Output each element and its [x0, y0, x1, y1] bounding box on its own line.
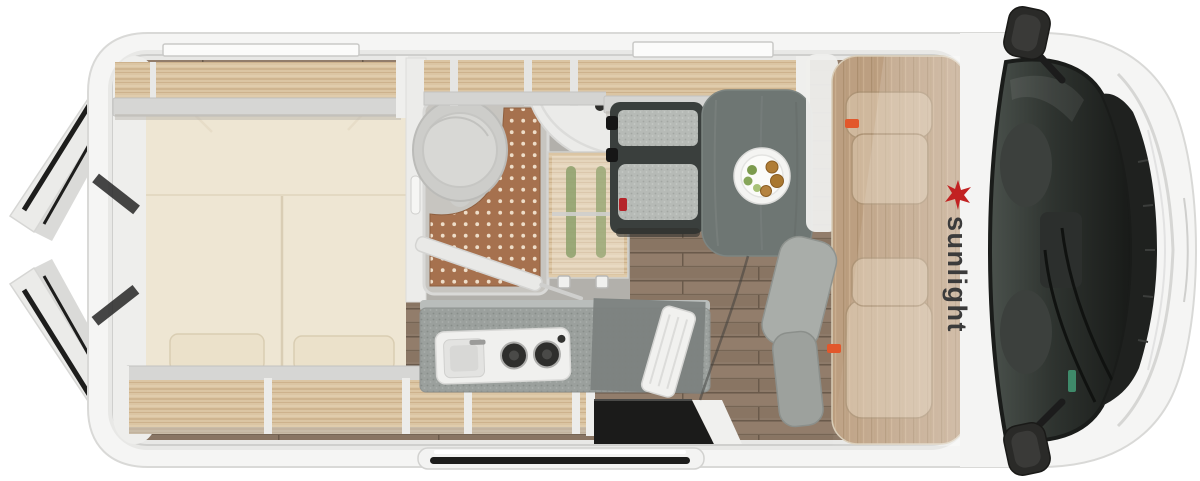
roof-vent-rear: [163, 44, 359, 56]
logo-text: sunlight: [942, 216, 972, 333]
dinette-bench: [606, 102, 704, 237]
shelf-wood-back: [115, 62, 401, 102]
hook-1: [558, 276, 570, 288]
bench-backrest-cushion: [618, 110, 698, 146]
bottom-shelf-divider-1: [264, 378, 272, 434]
shelf-divider: [150, 62, 156, 100]
food-greens-1: [747, 165, 757, 175]
food-brown-3: [761, 186, 772, 197]
seatbelt-buckle: [619, 198, 627, 211]
bottom-shelf-shadow: [128, 427, 590, 434]
bottom-shelf-divider-2: [402, 378, 410, 434]
roof-vent-front: [633, 42, 773, 57]
bathroom-overhead-cubbies: [424, 60, 630, 106]
bench-seat-cushion: [618, 164, 698, 220]
pillow-left: [170, 334, 264, 371]
food-greens-3: [753, 184, 761, 192]
camper-floorplan-image: sunlight: [0, 0, 1200, 481]
cubby-front-lip: [424, 92, 630, 105]
sliding-door-open-panel: [418, 448, 704, 469]
bench-shadow: [616, 228, 700, 237]
dash-seat-shape-bottom: [1000, 290, 1052, 374]
bathroom: [406, 58, 630, 307]
headrest-post-2: [606, 148, 618, 162]
overhead-shelf-rear: [113, 56, 408, 120]
headrest-post-1: [606, 116, 618, 130]
stove-sink-unit: [435, 328, 571, 385]
kitchen-faucet: [469, 339, 485, 345]
shelf-front-lip: [113, 98, 403, 116]
swivel-seat-cushion-gray: [771, 330, 825, 428]
shelf-shadow: [115, 114, 401, 120]
plate-of-food: [734, 148, 790, 204]
hook-2: [596, 276, 608, 288]
food-brown-1: [766, 161, 778, 173]
food-brown-2: [771, 175, 784, 188]
dash-seat-shape-top: [1000, 123, 1052, 207]
bathroom-door-handle: [411, 176, 420, 214]
floorplan-svg: sunlight: [0, 0, 1200, 481]
sliding-door-seal: [430, 457, 690, 464]
bottom-shelf-left-cap: [120, 366, 129, 436]
dash-green-strip: [1068, 370, 1076, 392]
kitchen-sink-bowl: [450, 345, 479, 372]
belt-tag-top: [845, 119, 859, 128]
sliding-door-highlight: [434, 450, 686, 454]
food-greens-2: [744, 177, 753, 186]
belt-tag-bottom: [827, 344, 841, 353]
